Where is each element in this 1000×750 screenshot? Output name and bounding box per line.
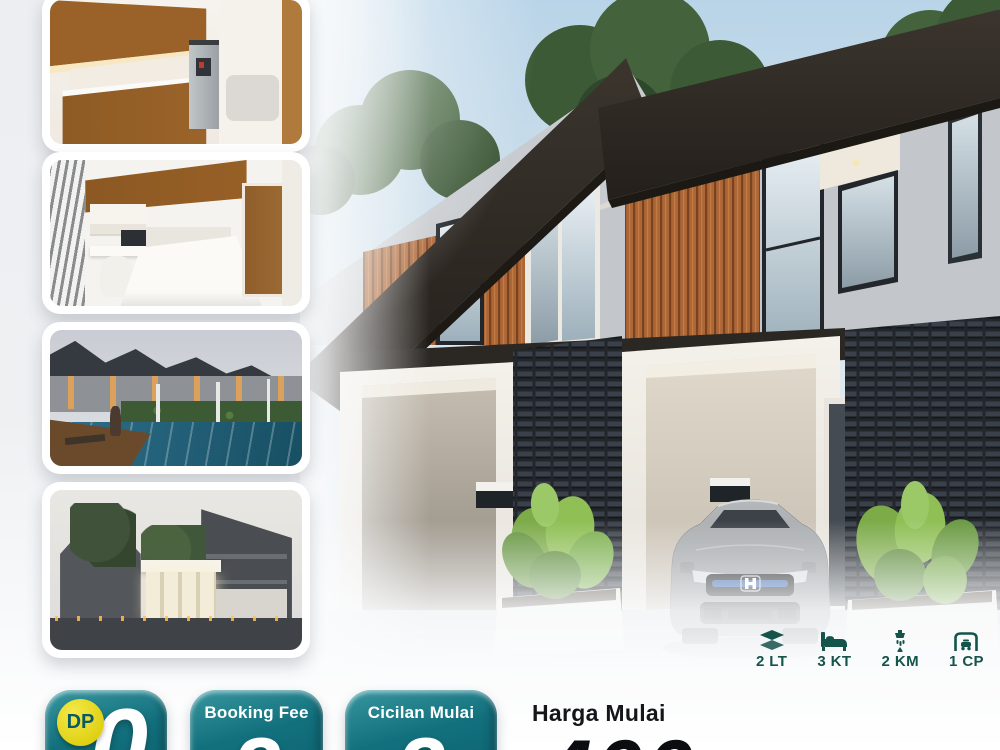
harga-value: 400	[544, 733, 697, 750]
pavilion-roof	[141, 560, 222, 571]
spec-bedrooms: 3 KT	[817, 630, 851, 670]
spec-carport: 1 CP	[949, 630, 984, 670]
ground	[50, 618, 302, 650]
townhouse-scene	[300, 0, 1000, 672]
monitor	[121, 230, 146, 246]
spec-label: 1 CP	[949, 653, 984, 670]
cicilan-badge: Cicilan Mulai 3	[345, 690, 497, 750]
spec-floors: 2 LT	[756, 630, 787, 670]
sofa	[226, 75, 279, 121]
booking-fee-badge: Booking Fee 3	[190, 690, 323, 750]
carport-icon	[953, 630, 979, 652]
shower-icon	[886, 630, 914, 652]
pool-scene	[50, 330, 302, 466]
fridge	[189, 40, 219, 129]
bedroom-scene	[50, 160, 302, 306]
spec-label: 3 KT	[817, 653, 851, 670]
spec-label: 2 KM	[882, 653, 919, 670]
spec-label: 2 LT	[756, 653, 787, 670]
thumbnail-kitchen	[42, 0, 310, 152]
lit-pavilion	[146, 572, 217, 620]
main-photo-townhouse	[300, 0, 1000, 672]
flyer-canvas: 2 LT 3 KT 2 KM	[0, 0, 1000, 750]
tree	[70, 503, 136, 567]
thumbnail-bedroom	[42, 152, 310, 314]
path-lights	[55, 616, 297, 621]
window-blinds	[50, 160, 85, 306]
thumbnail-pool	[42, 322, 310, 474]
person	[110, 406, 120, 436]
booking-fee-value: 3	[190, 725, 323, 750]
window	[842, 176, 894, 288]
cicilan-value: 3	[345, 725, 497, 750]
dp-tag: DP	[57, 699, 104, 746]
thumbnail-entrance	[42, 482, 310, 658]
bed-icon	[820, 630, 848, 652]
entrance-scene	[50, 490, 302, 650]
spec-row: 2 LT 3 KT 2 KM	[756, 630, 984, 670]
kitchen-scene	[50, 0, 302, 144]
harga-block: Harga Mulai 400	[532, 700, 697, 750]
dp-badge: DP 0	[45, 690, 167, 750]
floors-icon	[758, 630, 786, 652]
spec-bathrooms: 2 KM	[882, 630, 919, 670]
